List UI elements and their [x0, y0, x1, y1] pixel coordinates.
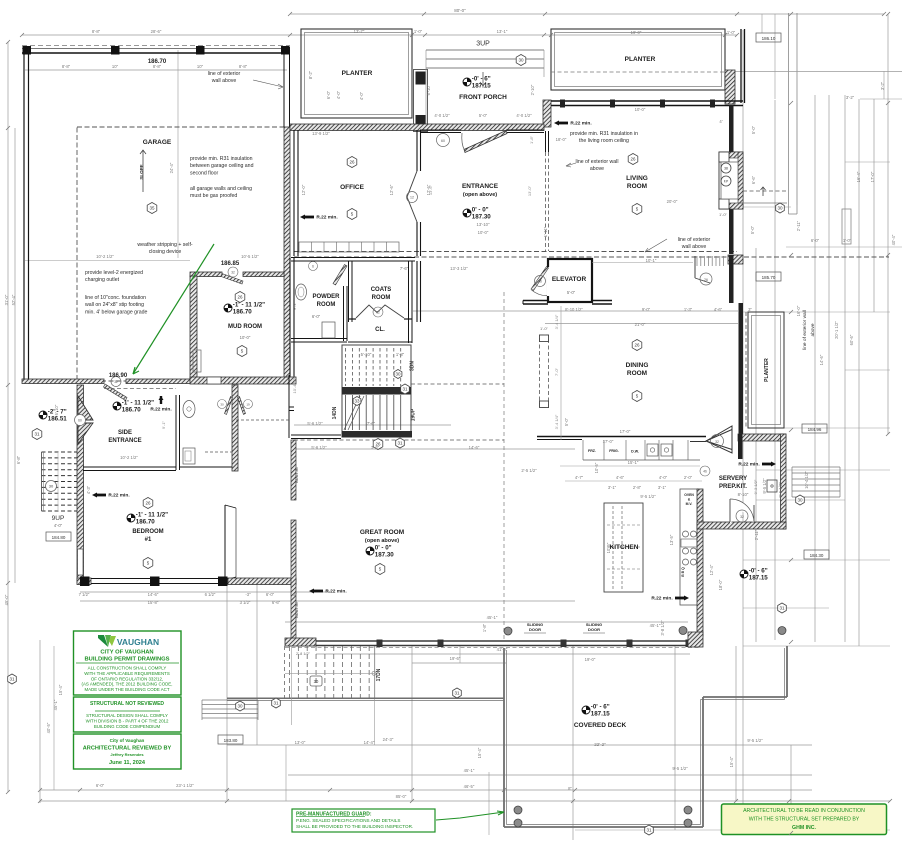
svg-text:185.70: 185.70 — [762, 275, 776, 280]
svg-text:18'-0": 18'-0" — [718, 579, 723, 590]
svg-text:31: 31 — [646, 828, 652, 833]
svg-text:2'-11": 2'-11" — [754, 529, 759, 540]
svg-text:#1: #1 — [145, 537, 152, 543]
svg-text:45'-0": 45'-0" — [4, 594, 9, 605]
svg-text:between garage ceiling and: between garage ceiling and — [190, 163, 254, 169]
svg-text:provide min. R31 insulation in: provide min. R31 insulation in — [570, 131, 638, 137]
svg-text:60'-6": 60'-6" — [849, 334, 854, 345]
svg-text:4'-3": 4'-3" — [86, 485, 91, 494]
svg-text:line of exterior wall: line of exterior wall — [576, 159, 619, 165]
svg-text:1'-0": 1'-0" — [727, 30, 736, 35]
svg-text:5'-10": 5'-10" — [361, 352, 372, 357]
svg-text:KITCHEN: KITCHEN — [610, 544, 639, 551]
svg-text:6'-6": 6'-6" — [751, 175, 756, 184]
svg-text:4'-0": 4'-0" — [359, 91, 364, 100]
svg-text:COATS: COATS — [371, 287, 392, 293]
svg-text:186.70: 186.70 — [233, 309, 252, 316]
svg-text:3'-1": 3'-1" — [608, 485, 617, 490]
svg-text:52'-4": 52'-4" — [11, 294, 16, 305]
svg-text:2'-11": 2'-11" — [796, 220, 801, 231]
svg-text:5'-0": 5'-0" — [479, 113, 488, 118]
svg-text:85'-0": 85'-0" — [396, 794, 407, 799]
svg-text:all garage walls and ceiling: all garage walls and ceiling — [190, 186, 252, 192]
svg-text:186.51: 186.51 — [48, 416, 67, 423]
svg-text:5'-0": 5'-0" — [751, 125, 756, 134]
svg-text:10'-4 1/2": 10'-4 1/2" — [292, 376, 297, 393]
svg-text:46'-5": 46'-5" — [464, 784, 475, 789]
svg-text:9'-5 1/2": 9'-5 1/2" — [672, 766, 688, 771]
svg-text:19UP: 19UP — [411, 408, 417, 421]
svg-text:OVEN: OVEN — [684, 493, 694, 497]
svg-text:16'-4": 16'-4" — [856, 171, 861, 182]
svg-text:R.22 min.: R.22 min. — [651, 596, 672, 602]
svg-text:10'-1": 10'-1" — [646, 258, 657, 263]
svg-text:-0' - 6": -0' - 6" — [472, 76, 491, 83]
svg-text:17DN: 17DN — [376, 668, 382, 681]
svg-text:line of exterior wall: line of exterior wall — [802, 310, 808, 350]
svg-text:(open above): (open above) — [365, 538, 399, 544]
svg-text:CL.: CL. — [375, 327, 385, 333]
svg-text:3'-8 1/2": 3'-8 1/2" — [660, 620, 665, 636]
svg-text:14'-4": 14'-4" — [364, 740, 375, 745]
svg-text:5'-0": 5'-0" — [564, 417, 569, 426]
svg-text:4': 4' — [719, 119, 722, 124]
svg-text:(open above): (open above) — [463, 192, 497, 198]
svg-text:20'-1 1/2": 20'-1 1/2" — [834, 321, 839, 339]
svg-text:15'-4": 15'-4" — [58, 684, 63, 695]
svg-text:8": 8" — [568, 786, 572, 791]
svg-text:31: 31 — [779, 606, 785, 611]
svg-text:6'-10": 6'-10" — [426, 84, 431, 95]
svg-text:SIDE: SIDE — [118, 430, 132, 436]
svg-text:Jeffrey Resendes: Jeffrey Resendes — [110, 752, 144, 757]
svg-text:10'-0": 10'-0" — [240, 335, 251, 340]
svg-text:6'-0": 6'-0" — [266, 592, 275, 597]
svg-text:26: 26 — [634, 343, 640, 348]
svg-text:R.22 min.: R.22 min. — [738, 462, 759, 468]
svg-text:-1' - 11 1/2": -1' - 11 1/2" — [136, 512, 168, 519]
svg-text:1'-8": 1'-8" — [529, 135, 534, 144]
svg-text:second floor: second floor — [190, 170, 219, 176]
svg-text:1'-0": 1'-0" — [719, 212, 728, 217]
svg-text:35: 35 — [149, 206, 155, 211]
svg-text:15'-1": 15'-1" — [628, 460, 639, 465]
svg-text:P.ENG. SEALED SPECIFICATIONS A: P.ENG. SEALED SPECIFICATIONS AND DETAILS — [296, 818, 400, 823]
svg-text:OFFICE: OFFICE — [340, 184, 364, 191]
svg-text:2'-0": 2'-0" — [684, 475, 693, 480]
svg-text:13'-3 1/2": 13'-3 1/2" — [450, 266, 468, 271]
svg-text:30: 30 — [797, 498, 803, 503]
svg-text:-0' - 6": -0' - 6" — [591, 704, 610, 711]
svg-text:ENTRANCE: ENTRANCE — [462, 183, 499, 190]
svg-text:33: 33 — [354, 399, 360, 404]
svg-text:weather stripping + self-: weather stripping + self- — [137, 242, 192, 248]
svg-text:12: 12 — [376, 311, 380, 315]
svg-text:12'-6": 12'-6" — [389, 184, 394, 195]
svg-text:13'-1": 13'-1" — [497, 29, 508, 34]
svg-text:R.22 min.: R.22 min. — [316, 215, 337, 221]
svg-text:2'-5 1/2": 2'-5 1/2" — [521, 468, 537, 473]
svg-text:0' - 0": 0' - 0" — [375, 545, 392, 552]
svg-text:6'-0": 6'-0" — [312, 314, 321, 319]
svg-text:DOOR: DOOR — [529, 627, 541, 632]
svg-text:13'-9 1/2": 13'-9 1/2" — [312, 131, 330, 136]
svg-text:6'-0": 6'-0" — [811, 238, 820, 243]
svg-text:16'-0": 16'-0" — [796, 305, 801, 316]
svg-text:14'-6": 14'-6" — [148, 592, 159, 597]
svg-text:City of Vaughan: City of Vaughan — [110, 738, 145, 743]
svg-text:the living room ceiling: the living room ceiling — [579, 138, 629, 144]
svg-text:187.15: 187.15 — [591, 711, 610, 718]
svg-text:9'-5 1/2": 9'-5 1/2" — [747, 738, 763, 743]
svg-text:GHM INC.: GHM INC. — [792, 825, 816, 831]
svg-text:8'-8": 8'-8" — [153, 64, 162, 69]
svg-text:187.30: 187.30 — [375, 552, 394, 559]
svg-text:-1' - 11 1/2": -1' - 11 1/2" — [233, 302, 265, 309]
svg-text:23'-1 1/2": 23'-1 1/2" — [176, 783, 194, 788]
svg-text:10'-2 1/2": 10'-2 1/2" — [96, 254, 114, 259]
svg-text:7'-6": 7'-6" — [367, 421, 376, 426]
svg-text:18'-0": 18'-0" — [556, 137, 567, 142]
svg-text:30: 30 — [220, 402, 224, 406]
svg-text:DOOR: DOOR — [588, 627, 600, 632]
svg-text:38: 38 — [724, 167, 728, 171]
svg-text:B B Q: B B Q — [681, 567, 685, 577]
svg-text:ARCHITECTURAL TO BE READ IN CO: ARCHITECTURAL TO BE READ IN CONJUNCTION — [743, 808, 865, 814]
svg-text:7'-6": 7'-6" — [400, 266, 409, 271]
svg-text:31: 31 — [454, 691, 460, 696]
svg-text:1'-0": 1'-0" — [843, 238, 852, 243]
svg-text:line of 10"conc. foundation: line of 10"conc. foundation — [85, 295, 146, 301]
svg-text:F.P: F.P — [724, 180, 729, 184]
svg-text:3'-2": 3'-2" — [846, 95, 855, 100]
svg-text:26: 26 — [145, 501, 151, 506]
svg-text:9'-3 1/2": 9'-3 1/2" — [753, 479, 758, 494]
svg-text:13'-7": 13'-7" — [354, 29, 365, 34]
svg-text:2'-8": 2'-8" — [633, 485, 642, 490]
svg-text:186.10: 186.10 — [762, 36, 776, 41]
svg-text:above: above — [810, 323, 816, 336]
svg-text:STRUCTURAL NOT REVIEWED: STRUCTURAL NOT REVIEWED — [90, 701, 164, 707]
svg-text:187.30: 187.30 — [472, 214, 491, 221]
svg-text:19'-0": 19'-0" — [585, 657, 596, 662]
svg-text:31: 31 — [273, 701, 279, 706]
svg-text:80'-0": 80'-0" — [454, 8, 466, 13]
svg-text:31: 31 — [34, 432, 40, 437]
svg-text:17'-0": 17'-0" — [620, 429, 631, 434]
svg-text:45'-1": 45'-1" — [464, 768, 475, 773]
svg-text:wall above: wall above — [682, 244, 707, 250]
svg-text:30: 30 — [314, 679, 319, 684]
svg-text:BEDROOM: BEDROOM — [132, 529, 163, 535]
svg-text:8'-10": 8'-10" — [738, 492, 749, 497]
svg-text:provide min. R31 insulation: provide min. R31 insulation — [190, 156, 253, 162]
svg-text:184.30: 184.30 — [810, 553, 824, 558]
svg-text:46: 46 — [703, 470, 707, 474]
svg-text:COVERED DECK: COVERED DECK — [574, 722, 627, 729]
svg-text:BUILDING CODE COMPENDIUM: BUILDING CODE COMPENDIUM — [94, 724, 161, 729]
svg-text:26: 26 — [704, 278, 708, 282]
svg-text:SHALL BE PROVIDED TO THE BUILD: SHALL BE PROVIDED TO THE BUILDING INSPEC… — [296, 824, 413, 829]
svg-text:32: 32 — [114, 380, 118, 384]
svg-text:line of exterior: line of exterior — [208, 71, 241, 77]
svg-text:R.22 min.: R.22 min. — [325, 589, 346, 595]
svg-text:ROOM: ROOM — [627, 370, 647, 377]
svg-text:9'-0": 9'-0" — [642, 307, 651, 312]
svg-text:STRUCTURAL DESIGN SHALL COMPLY: STRUCTURAL DESIGN SHALL COMPLY — [86, 713, 168, 718]
svg-text:OF ONTARIO REGULATION 332/12,: OF ONTARIO REGULATION 332/12, — [91, 676, 163, 681]
svg-text:provide level-2 energized: provide level-2 energized — [85, 270, 143, 276]
svg-text:1'-3": 1'-3" — [684, 307, 693, 312]
svg-text:19: 19 — [246, 402, 250, 406]
svg-text:186.70: 186.70 — [136, 519, 155, 526]
svg-text:POWDER: POWDER — [313, 294, 341, 300]
svg-text:5'-6 1/2": 5'-6 1/2" — [307, 421, 323, 426]
svg-text:wall on 24"x8" stip footing: wall on 24"x8" stip footing — [85, 302, 144, 308]
svg-text:13'-0": 13'-0" — [295, 740, 306, 745]
svg-text:17'-0": 17'-0" — [603, 439, 614, 444]
svg-text:FRIG.: FRIG. — [609, 449, 619, 453]
svg-text:WITH DIVISION B - PART 4 OF TH: WITH DIVISION B - PART 4 OF THE 2012 — [86, 718, 169, 723]
svg-text:SERVERY: SERVERY — [719, 476, 747, 482]
svg-text:60: 60 — [441, 139, 445, 143]
svg-text:1'-8": 1'-8" — [396, 352, 405, 357]
svg-text:10": 10" — [112, 64, 119, 69]
svg-text:-3": -3" — [245, 592, 251, 597]
svg-text:closing device: closing device — [149, 249, 182, 255]
svg-text:ENTRANCE: ENTRANCE — [108, 438, 141, 444]
svg-text:22'-2": 22'-2" — [594, 742, 606, 747]
svg-text:ALL CONSTRUCTION SHALL COMPLY: ALL CONSTRUCTION SHALL COMPLY — [88, 666, 167, 671]
svg-text:min. 4' below garage grade: min. 4' below garage grade — [85, 309, 148, 315]
svg-text:186.90: 186.90 — [109, 373, 128, 379]
svg-text:June 11, 2024: June 11, 2024 — [109, 760, 146, 766]
svg-text:9'-1": 9'-1" — [161, 420, 166, 429]
svg-text:9UP: 9UP — [52, 515, 65, 522]
svg-text:12'-6": 12'-6" — [426, 184, 431, 195]
svg-text:15'-4": 15'-4" — [729, 756, 734, 767]
svg-text:21'-0": 21'-0" — [635, 322, 646, 327]
svg-text:9'-5 1/2": 9'-5 1/2" — [762, 478, 767, 494]
svg-text:PLANTER: PLANTER — [342, 70, 373, 77]
svg-text:45'-1": 45'-1" — [487, 615, 498, 620]
svg-text:30: 30 — [518, 58, 524, 63]
svg-text:1'-0": 1'-0" — [540, 326, 549, 331]
svg-text:30: 30 — [777, 206, 783, 211]
svg-text:above: above — [590, 166, 604, 172]
svg-text:1'-8": 1'-8" — [482, 623, 487, 632]
svg-text:28'-6": 28'-6" — [151, 29, 162, 34]
svg-text:31: 31 — [402, 387, 408, 392]
svg-text:4'-6": 4'-6" — [714, 307, 723, 312]
svg-text:184.80: 184.80 — [52, 535, 66, 540]
svg-text:40'-4": 40'-4" — [891, 234, 896, 245]
svg-text:10'-5": 10'-5" — [594, 462, 599, 473]
svg-text:FRONT PORCH: FRONT PORCH — [459, 94, 507, 101]
svg-text:7'-6": 7'-6" — [371, 445, 380, 450]
svg-text:31'-0": 31'-0" — [4, 294, 9, 305]
svg-text:5'-0": 5'-0" — [567, 290, 576, 295]
svg-text:-0' - 6": -0' - 6" — [749, 568, 768, 575]
svg-text:6'-0": 6'-0" — [96, 783, 105, 788]
svg-text:14'-6": 14'-6" — [819, 354, 824, 365]
svg-text:26: 26 — [349, 160, 355, 165]
svg-text:1'-11": 1'-11" — [543, 226, 548, 237]
svg-text:41'-0": 41'-0" — [497, 647, 508, 652]
svg-text:DINING: DINING — [626, 362, 649, 369]
svg-text:14'-6": 14'-6" — [469, 445, 480, 450]
svg-text:4'-0 1/2": 4'-0 1/2" — [516, 113, 532, 118]
svg-text:187.15: 187.15 — [472, 83, 491, 90]
svg-text:10'-5": 10'-5" — [606, 542, 611, 553]
svg-text:CITY OF VAUGHAN: CITY OF VAUGHAN — [100, 650, 153, 656]
svg-text:13'-10": 13'-10" — [477, 222, 491, 227]
svg-text:6'-10": 6'-10" — [54, 404, 59, 415]
svg-text:WITH THE STRUCTURAL SET PREPAR: WITH THE STRUCTURAL SET PREPARED BY — [749, 817, 860, 823]
svg-text:10'-5 1/2": 10'-5 1/2" — [241, 254, 259, 259]
svg-text:24'-3": 24'-3" — [383, 737, 394, 742]
svg-text:BUILT-IN: BUILT-IN — [295, 467, 299, 483]
svg-text:19'-6": 19'-6" — [450, 656, 461, 661]
svg-text:BUILT-IN: BUILT-IN — [295, 602, 299, 618]
svg-text:6 1/2": 6 1/2" — [205, 592, 216, 597]
svg-text:ELEVATOR: ELEVATOR — [552, 276, 587, 283]
svg-text:8'-8": 8'-8" — [239, 64, 248, 69]
svg-text:45'-1": 45'-1" — [650, 623, 661, 628]
svg-text:2'-8 1/2": 2'-8 1/2" — [296, 652, 311, 656]
svg-text:183.80: 183.80 — [224, 738, 238, 743]
svg-text:R.22 min.: R.22 min. — [108, 493, 129, 499]
svg-text:3'-2": 3'-2" — [880, 81, 885, 90]
svg-text:PLANTER: PLANTER — [764, 358, 770, 382]
svg-text:GREAT ROOM: GREAT ROOM — [360, 529, 404, 536]
svg-text:5'-0": 5'-0" — [750, 225, 755, 234]
svg-text:ROOM: ROOM — [317, 302, 336, 308]
svg-text:6'-8": 6'-8" — [16, 455, 21, 464]
svg-text:D.W.: D.W. — [631, 450, 639, 454]
svg-text:R.22 min.: R.22 min. — [570, 121, 591, 127]
svg-text:13'-0": 13'-0" — [527, 185, 532, 196]
svg-text:R.22 min.: R.22 min. — [150, 407, 171, 413]
svg-text:36: 36 — [538, 280, 542, 284]
svg-text:WITH THE APPLICABLE REQUIREMEN: WITH THE APPLICABLE REQUIREMENTS — [84, 671, 170, 676]
svg-text:PREP.KIT.: PREP.KIT. — [719, 484, 747, 490]
svg-text:20'-0": 20'-0" — [667, 199, 678, 204]
svg-text:10": 10" — [197, 64, 204, 69]
svg-text:12'-0": 12'-0" — [301, 184, 306, 195]
svg-text:6'-0": 6'-0" — [326, 90, 331, 99]
svg-text:4'-0": 4'-0" — [659, 475, 668, 480]
svg-text:-1' - 11 1/2": -1' - 11 1/2" — [122, 400, 154, 407]
svg-text:(AS AMENDED), THE 2012 BUILDIN: (AS AMENDED), THE 2012 BUILDING CODE, — [82, 682, 173, 687]
svg-text:187.15: 187.15 — [749, 575, 768, 582]
svg-text:7'-0": 7'-0" — [554, 367, 559, 376]
svg-text:4'-6": 4'-6" — [616, 475, 625, 480]
svg-text:3DN: 3DN — [410, 361, 416, 371]
svg-text:9'-5 1/2": 9'-5 1/2" — [778, 482, 783, 498]
svg-text:40'-5": 40'-5" — [46, 722, 51, 733]
svg-text:8'-8": 8'-8" — [62, 64, 71, 69]
svg-text:M.V.: M.V. — [686, 502, 693, 506]
svg-text:MUD ROOM: MUD ROOM — [228, 324, 262, 330]
svg-text:must be gas proofed: must be gas proofed — [190, 193, 237, 199]
svg-text:10'-0": 10'-0" — [478, 230, 489, 235]
svg-text:19'-0": 19'-0" — [631, 30, 642, 35]
svg-text:ROOM: ROOM — [627, 183, 647, 190]
svg-text:3UP: 3UP — [476, 41, 490, 48]
svg-text:4'-0": 4'-0" — [336, 90, 341, 99]
svg-text:8'-2": 8'-2" — [308, 70, 313, 79]
svg-text:4'-0 1/2": 4'-0 1/2" — [434, 113, 450, 118]
svg-text:3 1/2": 3 1/2" — [240, 600, 251, 605]
svg-text:1'-0": 1'-0" — [414, 29, 423, 34]
svg-text:line of exterior: line of exterior — [678, 237, 711, 243]
svg-text:186.70: 186.70 — [122, 407, 141, 414]
svg-text:6: 6 — [312, 264, 314, 268]
svg-text:ARCHITECTURAL REVIEWED BY: ARCHITECTURAL REVIEWED BY — [83, 746, 172, 752]
svg-text:3": 3" — [293, 592, 297, 597]
svg-text:wall above: wall above — [212, 78, 237, 84]
svg-text:30: 30 — [395, 372, 401, 377]
svg-text:26: 26 — [237, 295, 243, 300]
svg-text:30: 30 — [237, 704, 243, 709]
svg-text:60: 60 — [78, 419, 82, 423]
svg-text:7 1/2": 7 1/2" — [79, 592, 90, 597]
svg-text:VAUGHAN: VAUGHAN — [117, 637, 159, 647]
svg-text:24'-4": 24'-4" — [169, 162, 174, 173]
svg-text:3'-4 1/4": 3'-4 1/4" — [554, 314, 559, 329]
svg-text:2'-10": 2'-10" — [530, 84, 535, 95]
svg-text:17'-0": 17'-0" — [870, 171, 875, 182]
svg-text:0' - 0": 0' - 0" — [472, 207, 489, 214]
svg-text:26: 26 — [630, 157, 636, 162]
svg-text:PLANTER: PLANTER — [625, 56, 656, 63]
svg-text:32: 32 — [715, 440, 719, 444]
svg-text:9'-5 1/2": 9'-5 1/2" — [640, 494, 656, 499]
svg-text:3": 3" — [748, 307, 752, 312]
svg-text:LIVING: LIVING — [626, 175, 648, 182]
svg-text:13'-5": 13'-5" — [669, 534, 674, 545]
svg-text:31: 31 — [397, 441, 403, 446]
svg-text:10'-2 1/2": 10'-2 1/2" — [120, 455, 138, 460]
svg-text:charging outlet: charging outlet — [85, 277, 120, 283]
svg-text:14DN: 14DN — [332, 406, 338, 419]
svg-text:MADE UNDER THE BUILDING CODE A: MADE UNDER THE BUILDING CODE ACT — [84, 687, 169, 692]
svg-text:15'-4": 15'-4" — [477, 747, 482, 758]
svg-text:3'-4 1/4": 3'-4 1/4" — [554, 414, 559, 429]
svg-text:12: 12 — [410, 196, 414, 200]
svg-text:8'-10 1/2": 8'-10 1/2" — [565, 307, 583, 312]
svg-text:45'-1": 45'-1" — [53, 699, 58, 710]
svg-text:FRZ.: FRZ. — [588, 449, 596, 453]
svg-text:5'-6 1/2": 5'-6 1/2" — [311, 445, 327, 450]
svg-text:4'-7": 4'-7" — [575, 475, 584, 480]
svg-text:4'-0": 4'-0" — [54, 523, 63, 528]
svg-text:31: 31 — [9, 677, 15, 682]
svg-text:186.85: 186.85 — [221, 261, 240, 267]
svg-text:184.96: 184.96 — [808, 427, 822, 432]
svg-text:3'-1": 3'-1" — [658, 485, 667, 490]
svg-text:ROOM: ROOM — [372, 295, 391, 301]
svg-text:15'-8": 15'-8" — [148, 600, 159, 605]
svg-text:10'-0": 10'-0" — [635, 107, 646, 112]
svg-text:30: 30 — [49, 484, 54, 489]
svg-text:GARAGE: GARAGE — [143, 139, 172, 146]
svg-text:8'-8": 8'-8" — [92, 29, 101, 34]
svg-text:6'-6": 6'-6" — [272, 600, 281, 605]
svg-text:12'-4": 12'-4" — [709, 564, 714, 575]
svg-text:32: 32 — [231, 271, 235, 275]
